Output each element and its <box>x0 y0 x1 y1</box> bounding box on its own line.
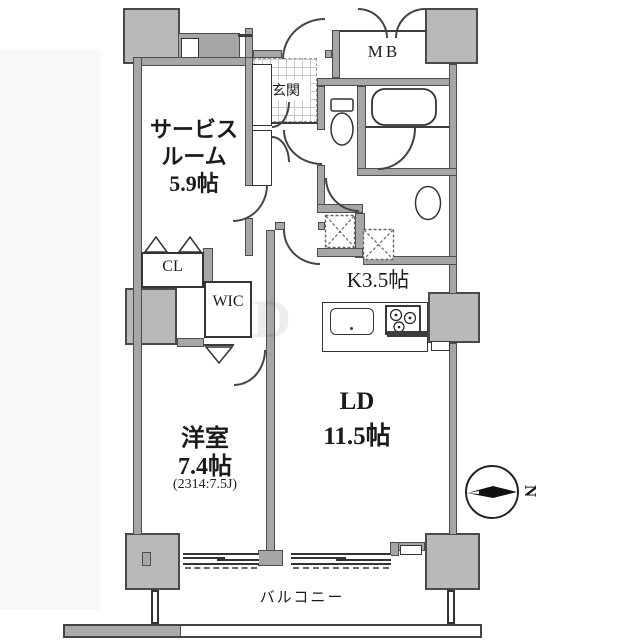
wall-toilet-left-lower <box>317 165 325 206</box>
watermark-letter: D <box>252 288 291 350</box>
shoe-cabinet-lower <box>252 130 272 186</box>
wall-room-divider <box>266 230 275 556</box>
wall-service-right-lower <box>245 218 253 256</box>
compass-north-label: N <box>520 479 540 503</box>
floorplan-canvas: 玄関 MB K3 <box>0 0 640 640</box>
balcony-divider-left <box>151 590 159 624</box>
kitchen-label: K3.5帖 <box>318 264 438 294</box>
pillar-bottom-left <box>125 533 180 590</box>
window-dash-right <box>293 567 389 569</box>
window-dash-left <box>185 567 257 569</box>
pillar-top-right <box>425 8 478 64</box>
wall-wic-bottom <box>177 338 204 347</box>
wall-entrance-stub <box>245 28 253 58</box>
pillar-bottom-right <box>425 533 480 590</box>
shoe-cabinet-upper <box>252 64 272 126</box>
wall-nook-bottom <box>317 248 363 257</box>
closet-label: CL <box>141 258 204 276</box>
pipe-space-box <box>181 38 199 58</box>
wall-approach-line <box>238 34 252 37</box>
western-room-dimension-note: (2314:7.5J) <box>145 477 265 493</box>
wall-entrance-top-right <box>325 50 332 58</box>
compass-icon <box>463 463 521 521</box>
bathtub-icon <box>370 87 438 127</box>
window-post-center <box>258 550 283 566</box>
washbasin-icon <box>412 184 444 222</box>
wall-entrance-top-left <box>253 50 282 58</box>
wall-bath-washroom-divider <box>357 168 457 176</box>
balcony-railing-solid-segment <box>65 626 181 636</box>
shoe-cabinet-door-arc-1 <box>272 102 290 128</box>
wall-right-lower <box>449 343 457 535</box>
ld-door-arc <box>283 230 320 265</box>
toilet-icon <box>328 98 356 148</box>
closet-folding-door-triangle-2 <box>177 236 203 253</box>
kitchen-sink <box>330 308 374 335</box>
scan-shading <box>0 50 100 610</box>
mb-door-arc-left <box>358 8 388 38</box>
wall-service-top <box>133 57 255 66</box>
wall-mb-bottom <box>317 78 457 86</box>
washer-space-hatch <box>362 228 395 261</box>
western-room-label-2: 7.4帖 <box>145 446 265 481</box>
closet-folding-door-triangle-1 <box>143 236 169 253</box>
ld-window <box>291 553 391 565</box>
bath-door-arc <box>378 128 416 170</box>
wic-folding-door-triangle <box>204 346 234 364</box>
sink-drain-dot <box>350 327 353 330</box>
pillar-top-left <box>123 8 180 64</box>
wall-step-vertical <box>390 542 399 556</box>
wall-mb-left <box>332 30 340 78</box>
wall-toilet-left-upper <box>317 86 325 130</box>
western-room-window <box>183 553 259 565</box>
vent-box-ld <box>400 545 422 555</box>
service-room-label-3: 5.9帖 <box>136 166 252 198</box>
balcony-divider-right <box>447 590 455 624</box>
living-dining-label-2: 11.5帖 <box>297 416 417 452</box>
fridge-space-hatch <box>324 214 356 249</box>
western-room-door-arc <box>234 350 266 386</box>
meter-box-label: MB <box>350 42 418 62</box>
walk-in-closet-label: WIC <box>204 293 252 311</box>
balcony-railing <box>63 624 482 638</box>
balcony-label: バルコニー <box>247 586 357 607</box>
living-dining-label-1: LD <box>297 388 417 416</box>
counter-front-line <box>387 331 428 337</box>
wall-hall-ld-left <box>275 222 285 230</box>
bath-partition-line <box>366 126 449 128</box>
entrance-door-arc <box>282 18 325 59</box>
window-post-left <box>142 552 151 566</box>
mb-door-arc-right <box>395 8 425 38</box>
pillar-mid-right <box>428 292 480 343</box>
wall-toilet-bath-divider <box>357 86 366 170</box>
vent-box-kitchen <box>431 341 450 351</box>
